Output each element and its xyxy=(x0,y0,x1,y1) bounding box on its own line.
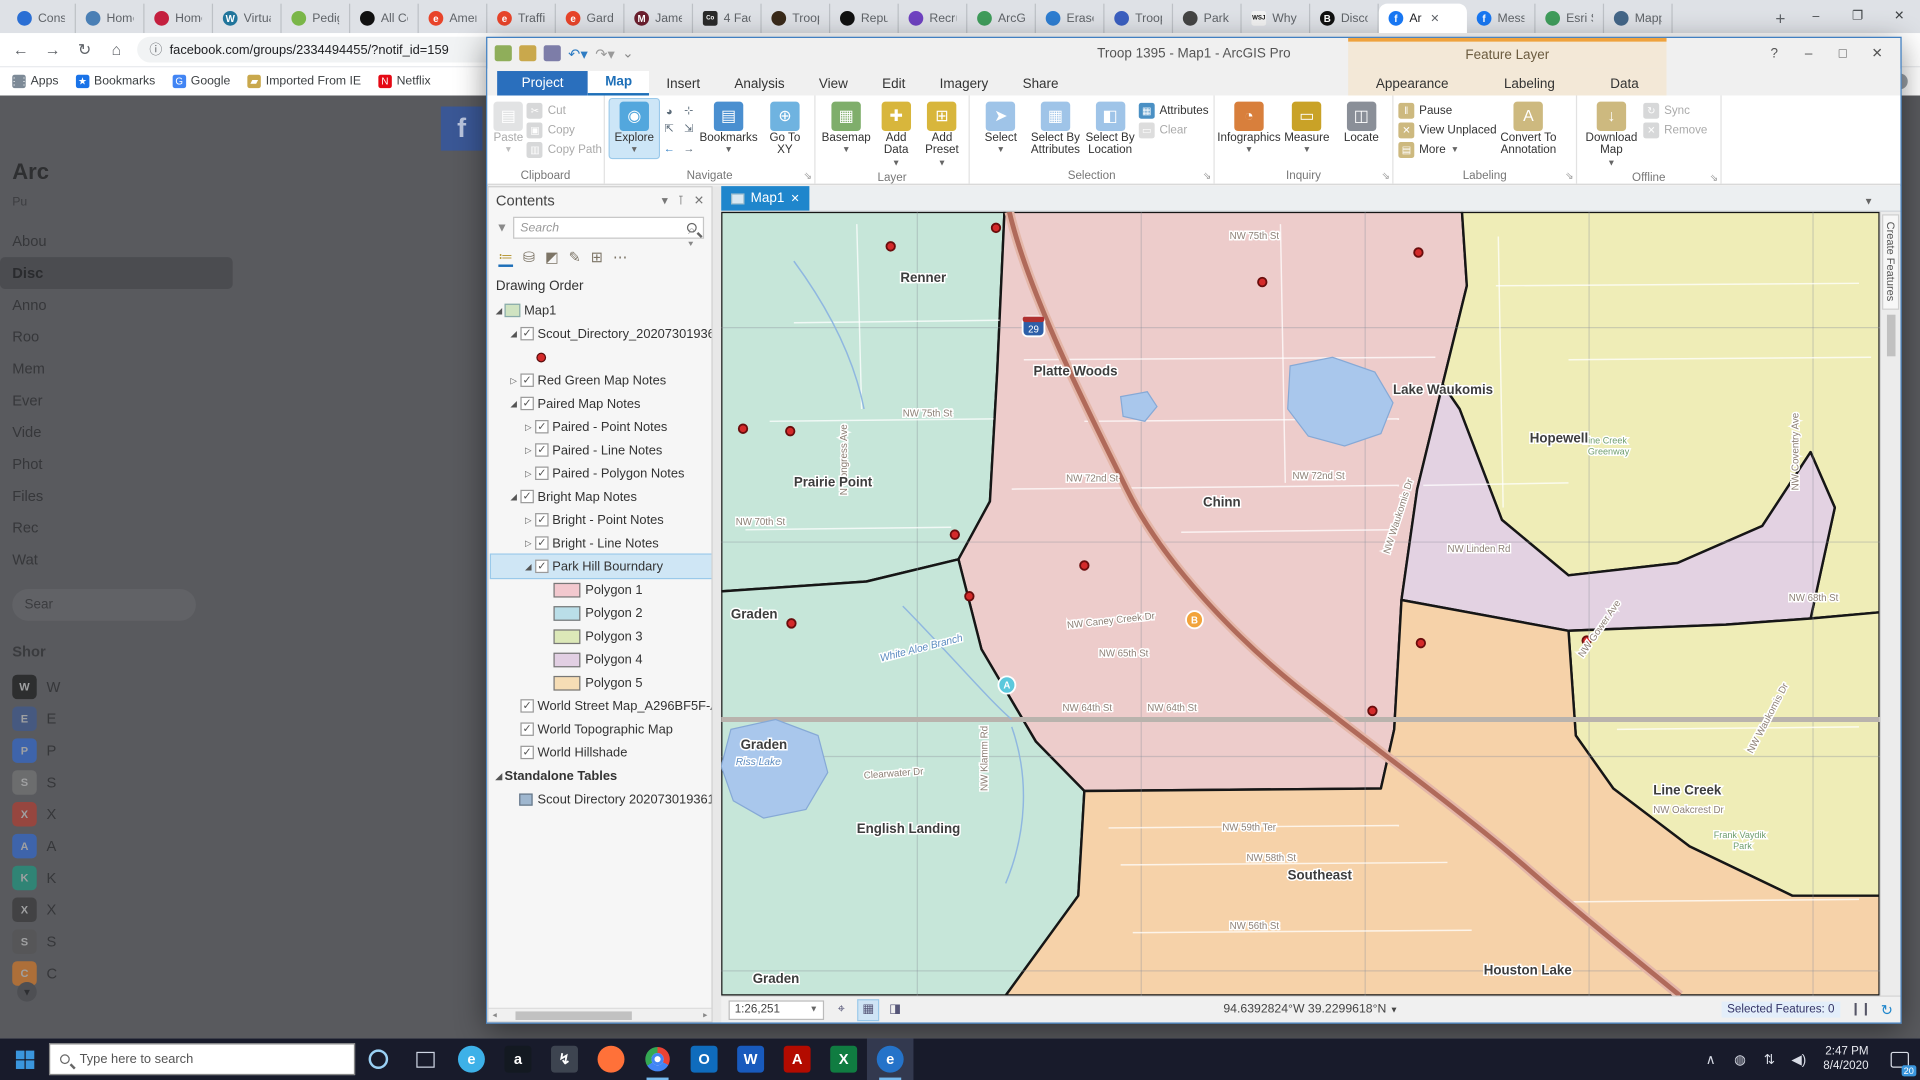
ribbon-tab-appearance[interactable]: Appearance xyxy=(1359,73,1466,95)
home-icon[interactable]: ⌂ xyxy=(105,40,127,58)
action-center-button[interactable]: 20 xyxy=(1878,1038,1920,1080)
dropdown-caret-icon: ▼ xyxy=(630,146,638,155)
map-tab-close-icon[interactable]: ✕ xyxy=(790,192,799,205)
search-icon xyxy=(60,1054,70,1064)
shortcut-item[interactable]: XX xyxy=(0,798,269,830)
group-visibility: Pu xyxy=(12,196,27,209)
bookmark-label: Bookmarks xyxy=(94,75,155,88)
tab-label: Mapp xyxy=(1635,12,1662,25)
pause-button[interactable]: ‖Pause xyxy=(1398,103,1496,119)
reload-icon[interactable]: ↻ xyxy=(73,40,95,60)
notification-badge: 20 xyxy=(1901,1065,1916,1076)
shortcut-item[interactable]: AA xyxy=(0,830,269,862)
download-icon: ↓ xyxy=(1597,102,1626,131)
button-label: Copy xyxy=(548,124,575,137)
group-menu-item[interactable]: Abou xyxy=(0,225,269,257)
more-button[interactable]: ▤More▼ xyxy=(1398,142,1496,158)
tab-favicon xyxy=(1114,11,1129,26)
shortcut-item[interactable]: CC xyxy=(0,958,269,990)
polygon-symbol-swatch[interactable] xyxy=(553,629,580,644)
tab-label: Ameri xyxy=(449,12,476,25)
map-label: Graden xyxy=(741,737,788,752)
tab-favicon xyxy=(1614,11,1629,26)
refresh-icon[interactable]: ↻ xyxy=(1881,1001,1893,1018)
sync-button[interactable]: ↻Sync xyxy=(1643,103,1707,119)
help-tray-icon[interactable]: ◍ xyxy=(1725,1051,1754,1067)
group-menu-item[interactable]: Wat xyxy=(0,544,269,576)
taskbar-app-excel[interactable]: X xyxy=(820,1038,867,1080)
ribbon-tab-imagery[interactable]: Imagery xyxy=(922,73,1005,95)
remove-icon: ✕ xyxy=(1643,122,1659,138)
task-view-button[interactable] xyxy=(402,1038,449,1080)
chevron-down-icon[interactable]: ▼ xyxy=(17,982,37,1002)
search-icon[interactable]: ⌕ ▾ xyxy=(687,223,697,233)
layer-tree-row[interactable]: ◢✓Park Hill Bourndary xyxy=(491,555,711,578)
remove-button[interactable]: ✕Remove xyxy=(1643,122,1707,138)
polygon-symbol-swatch[interactable] xyxy=(553,606,580,621)
bookmarks-button[interactable]: ▤Bookmarks▼ xyxy=(699,99,758,158)
button-label: More xyxy=(1419,143,1446,156)
group-menu-item[interactable]: Rec xyxy=(0,512,269,544)
group-menu-item[interactable]: Phot xyxy=(0,448,269,480)
map-label: NW 64th St xyxy=(1063,703,1113,714)
bookmark-item[interactable]: NNetflix xyxy=(378,75,430,88)
explore-button[interactable]: ◉Explore▼ xyxy=(610,99,659,158)
tab-label: Home xyxy=(107,12,134,25)
shortcut-item[interactable]: WW xyxy=(0,671,269,703)
layer-tree-row[interactable]: ▷✓Paired - Polygon Notes xyxy=(491,462,711,485)
shortcut-avatar: S xyxy=(12,929,36,953)
tab-label: Troop xyxy=(1135,12,1162,25)
browser-tab[interactable]: eTraffic xyxy=(487,4,556,33)
layer-label: World Topographic Map xyxy=(538,722,673,737)
google-icon: G xyxy=(172,75,185,88)
previous-extent-icon[interactable]: ← xyxy=(661,140,677,156)
dialog-launcher-icon[interactable]: ⇘ xyxy=(1710,172,1718,183)
map-tab-icon xyxy=(731,193,744,204)
group-menu-item[interactable]: Disc xyxy=(0,257,233,289)
tab-favicon: M xyxy=(634,11,649,26)
map-label: NW 56th St xyxy=(1230,921,1280,932)
browser-minimize-button[interactable]: – xyxy=(1795,0,1837,33)
volume-icon[interactable]: ◀) xyxy=(1784,1051,1813,1067)
shortcut-item[interactable]: KK xyxy=(0,862,269,894)
layer-tree-row[interactable]: ▷✓Paired - Line Notes xyxy=(491,438,711,461)
contents-search-input[interactable]: Search ⌕ ▾ xyxy=(513,217,704,239)
tab-label: ArcGI xyxy=(998,12,1025,25)
map-label: Frank Vaydik xyxy=(1714,830,1767,840)
pause-drawing-icon[interactable]: ❙❙ xyxy=(1850,1003,1871,1016)
start-button[interactable] xyxy=(0,1038,49,1080)
map-label: NW 68th St xyxy=(1789,593,1839,604)
layer-tree-row[interactable]: ◢✓Scout_Directory_2020730193615_G xyxy=(491,322,711,345)
ribbon-tab-project[interactable]: Project xyxy=(497,71,588,95)
browser-tab[interactable]: Co4 Fact xyxy=(693,4,762,33)
browser-tab[interactable]: Park xyxy=(1173,4,1242,33)
gotoxy-icon: ⊕ xyxy=(770,102,799,131)
bookmarks-icon: ▤ xyxy=(714,102,743,131)
layer-label: Bright - Line Notes xyxy=(552,536,658,551)
amazon-icon: a xyxy=(504,1046,531,1073)
layer-tree-row[interactable]: Polygon 3 xyxy=(491,624,711,647)
more-options-icon[interactable]: ⋯ xyxy=(613,249,628,266)
convert-to-annotation-button[interactable]: AConvert To Annotation xyxy=(1499,99,1558,160)
browser-tab[interactable]: Troop xyxy=(1104,4,1173,33)
ribbon-group-clipboard: ▤Paste▼✂Cut▣Copy▥Copy PathClipboard xyxy=(487,96,605,184)
infographics-button[interactable]: ◔Infographics▼ xyxy=(1220,99,1279,158)
snapping-toggle-icon[interactable]: ◨ xyxy=(885,1000,905,1020)
close-button[interactable]: ✕ xyxy=(1861,42,1893,65)
add-preset-button[interactable]: ⊞Add Preset▼ xyxy=(920,99,963,171)
group-menu-item[interactable]: Mem xyxy=(0,353,269,385)
search-placeholder: Search xyxy=(520,221,559,234)
layer-checkbox[interactable]: ✓ xyxy=(535,420,548,433)
map-canvas[interactable]: 29BANW 75th StNW 75th StNW 72nd StNW 72n… xyxy=(721,212,1879,996)
tab-label: Erase xyxy=(1067,12,1094,25)
windows-logo-icon xyxy=(15,1050,33,1068)
button-label: Add Data xyxy=(876,132,917,158)
help-button[interactable]: ? xyxy=(1758,42,1790,65)
clear-button[interactable]: ▭Clear xyxy=(1139,122,1209,138)
select-by-attributes-button[interactable]: ▦Select By Attributes xyxy=(1029,99,1081,160)
map-label: Park xyxy=(1733,841,1752,851)
taskbar-app-word[interactable]: W xyxy=(727,1038,774,1080)
button-label: Infographics xyxy=(1217,132,1280,145)
button-label: Locate xyxy=(1344,132,1379,145)
tab-favicon: e xyxy=(566,11,581,26)
expander-icon: ▷ xyxy=(508,375,519,385)
attributes-button[interactable]: ▦Attributes xyxy=(1139,103,1209,119)
shortcut-item[interactable]: SS xyxy=(0,767,269,799)
browser-tab[interactable]: Home xyxy=(76,4,145,33)
browser-tab[interactable]: MJames xyxy=(624,4,693,33)
ribbon-tab-view[interactable]: View xyxy=(802,73,865,95)
ribbon-group-offline: ↓Download Map▼↻Sync✕RemoveOffline⇘ xyxy=(1577,96,1721,184)
layer-tree-row[interactable]: ✓World Topographic Map xyxy=(491,718,711,741)
create-features-tab[interactable]: Create Features xyxy=(1882,214,1899,310)
ribbon-tab-edit[interactable]: Edit xyxy=(865,73,923,95)
group-search-input[interactable]: Sear xyxy=(12,589,196,621)
browser-tab[interactable]: fMesse xyxy=(1467,4,1536,33)
tab-label: James xyxy=(655,12,682,25)
group-menu-item[interactable]: Ever xyxy=(0,384,269,416)
layer-tree-row[interactable]: Polygon 1 xyxy=(491,578,711,601)
arcgis-pro-window: ↶▾ ↷▾ ⌄ Troop 1395 - Map1 - ArcGIS Pro F… xyxy=(486,37,1902,1024)
shortcut-avatar: S xyxy=(12,770,36,794)
zoom-in-grid-icon[interactable]: ⇱ xyxy=(661,121,677,137)
layer-checkbox[interactable]: ✓ xyxy=(535,443,548,456)
layer-tree-row[interactable]: Polygon 5 xyxy=(491,671,711,694)
group-menu-item[interactable]: Files xyxy=(0,480,269,512)
go-to-xy-icon[interactable]: ⌖ xyxy=(831,1000,851,1020)
browser-tab[interactable]: eGarde xyxy=(556,4,625,33)
browser-close-button[interactable]: ✕ xyxy=(1878,0,1920,33)
layer-checkbox[interactable]: ✓ xyxy=(520,490,533,503)
browser-tab[interactable]: Troop xyxy=(762,4,831,33)
list-by-snapping-icon[interactable]: ⊞ xyxy=(591,249,603,266)
taskbar-app-internet-explorer[interactable]: e xyxy=(448,1038,495,1080)
ribbon-tab-analysis[interactable]: Analysis xyxy=(717,73,801,95)
map-label: NW Oakcrest Dr xyxy=(1653,805,1724,816)
map-label: NW 59th Ter xyxy=(1222,822,1276,833)
browser-tab[interactable]: All Co xyxy=(350,4,419,33)
cut-button[interactable]: ✂Cut xyxy=(527,103,602,119)
layer-checkbox[interactable]: ✓ xyxy=(535,467,548,480)
browser-tab[interactable]: Repub xyxy=(830,4,899,33)
map-label: Renner xyxy=(900,270,947,285)
view-unplaced-button[interactable]: ✕View Unplaced xyxy=(1398,122,1496,138)
pin-icon[interactable]: ⊺ xyxy=(678,194,684,207)
tab-label: Const xyxy=(38,12,65,25)
layer-tree-row[interactable]: Polygon 4 xyxy=(491,648,711,671)
scout-point-feature xyxy=(886,242,894,251)
dialog-launcher-icon[interactable]: ⇘ xyxy=(1565,170,1573,181)
tab-list-chevron-icon[interactable]: ▼ xyxy=(1864,196,1874,207)
pane-close-icon[interactable]: ✕ xyxy=(694,194,704,207)
ribbon-tab-labeling[interactable]: Labeling xyxy=(1487,73,1572,95)
map-right-rail: Create Features xyxy=(1880,212,1901,996)
map-label: Chinn xyxy=(1203,494,1241,509)
expander-icon: ◢ xyxy=(493,771,504,781)
browser-tab[interactable]: Const xyxy=(7,4,76,33)
point-symbol-swatch xyxy=(536,352,546,362)
layer-label: Polygon 1 xyxy=(585,582,642,597)
select-button[interactable]: ➤Select▼ xyxy=(975,99,1027,158)
bookmark-item[interactable]: ▰Imported From IE xyxy=(247,75,361,88)
shortcut-item[interactable]: PP xyxy=(0,735,269,767)
layer-label: Paired Map Notes xyxy=(538,396,641,411)
tab-label: Pedig xyxy=(312,12,339,25)
taskbar-app-arcgis-pro[interactable]: e xyxy=(867,1038,914,1080)
filter-icon[interactable]: ▼ xyxy=(496,221,508,234)
contents-hscrollbar[interactable]: ◂▸ xyxy=(489,1008,712,1021)
tab-favicon xyxy=(291,11,306,26)
select-by-location-button[interactable]: ◧Select By Location xyxy=(1084,99,1136,160)
dropdown-caret-icon: ▼ xyxy=(1245,146,1253,155)
cortana-button[interactable] xyxy=(355,1038,402,1080)
grid-icon[interactable]: ▦ xyxy=(858,1000,878,1020)
button-label: View Unplaced xyxy=(1419,124,1496,137)
browser-tab[interactable]: Esri S xyxy=(1536,4,1605,33)
layer-checkbox[interactable]: ✓ xyxy=(520,397,533,410)
browser-tab[interactable]: fAr✕ xyxy=(1379,4,1467,33)
taskbar-clock[interactable]: 2:47 PM 8/4/2020 xyxy=(1813,1045,1878,1074)
forward-icon[interactable]: → xyxy=(42,40,64,58)
taskbar-app-chrome[interactable] xyxy=(634,1038,681,1080)
ribbon-tab-share[interactable]: Share xyxy=(1005,73,1075,95)
tab-favicon xyxy=(840,11,855,26)
dropdown-caret-icon: ▼ xyxy=(1607,159,1615,168)
shortcut-label: K xyxy=(47,869,57,886)
locate-icon: ◫ xyxy=(1347,102,1376,131)
download-map-button[interactable]: ↓Download Map▼ xyxy=(1582,99,1641,171)
expander-icon: ◢ xyxy=(508,492,519,502)
hidden-icons-chevron[interactable]: ∧ xyxy=(1696,1051,1725,1067)
layer-tree: ◢Map1◢✓Scout_Directory_2020730193615_G▷✓… xyxy=(489,299,712,1008)
taskbar-app-outlook[interactable]: O xyxy=(681,1038,728,1080)
add-data-button[interactable]: ✚Add Data▼ xyxy=(874,99,917,171)
layer-tree-row[interactable]: ▷✓Paired - Point Notes xyxy=(491,415,711,438)
layer-tree-row[interactable]: ▷✓Bright - Point Notes xyxy=(491,508,711,531)
taskbar-app-epic[interactable]: ↯ xyxy=(541,1038,588,1080)
svg-text:B: B xyxy=(1191,615,1198,626)
next-extent-icon[interactable]: → xyxy=(681,140,697,156)
scout-point-feature xyxy=(1417,639,1425,648)
taskbar-search-input[interactable]: Type here to search xyxy=(49,1043,355,1075)
shortcut-item[interactable]: EE xyxy=(0,703,269,735)
browser-tab[interactable]: Recru xyxy=(899,4,968,33)
pane-menu-icon[interactable]: ▾ xyxy=(662,194,668,207)
basemap-button[interactable]: ▦Basemap▼ xyxy=(820,99,872,158)
dialog-launcher-icon[interactable]: ⇘ xyxy=(804,170,812,181)
bookmark-item[interactable]: ★Bookmarks xyxy=(76,75,156,88)
fixed-zoom-icon[interactable]: ⊹ xyxy=(681,103,697,119)
go-to-xy-button[interactable]: ⊕Go To XY xyxy=(760,99,809,160)
back-icon[interactable]: ← xyxy=(10,40,32,58)
minimize-button[interactable]: – xyxy=(1793,42,1825,65)
tab-favicon xyxy=(1046,11,1061,26)
dialog-launcher-icon[interactable]: ⇘ xyxy=(1203,170,1211,181)
ribbon-group-navigate: ◉Explore▼◕⊹⇱⇲←→▤Bookmarks▼⊕Go To XYNavig… xyxy=(605,96,816,184)
dialog-launcher-icon[interactable]: ⇘ xyxy=(1382,170,1390,181)
group-menu-item[interactable]: Roo xyxy=(0,321,269,353)
system-tray: ∧ ◍ ⇅ ◀) 2:47 PM 8/4/2020 20 xyxy=(1696,1038,1920,1080)
acrobat-icon: A xyxy=(784,1046,811,1073)
bookmark-item[interactable]: GGoogle xyxy=(172,75,230,88)
adddata-icon: ✚ xyxy=(881,102,910,131)
new-tab-button[interactable]: + xyxy=(1766,4,1795,33)
layer-tree-row[interactable]: ✓World Hillshade xyxy=(491,741,711,764)
arcgis-title-bar[interactable]: ↶▾ ↷▾ ⌄ Troop 1395 - Map1 - ArcGIS Pro F… xyxy=(487,38,1900,69)
browser-tab[interactable]: Mapp xyxy=(1604,4,1673,33)
tab-label: Why xyxy=(1272,12,1296,25)
network-icon[interactable]: ⇅ xyxy=(1755,1051,1784,1067)
tab-favicon xyxy=(360,11,375,26)
shortcut-item[interactable]: XX xyxy=(0,894,269,926)
map-label: Southeast xyxy=(1288,868,1353,883)
map-tab[interactable]: Map1 ✕ xyxy=(721,186,809,210)
contents-toolbar: ≔ ⛁ ◩ ✎ ⊞ ⋯ xyxy=(489,241,712,269)
button-label: Attributes xyxy=(1159,104,1208,117)
scout-point-feature xyxy=(965,592,973,601)
browser-tab[interactable]: Home xyxy=(144,4,213,33)
task-view-icon xyxy=(416,1051,434,1067)
layer-checkbox[interactable]: ✓ xyxy=(520,722,533,735)
ribbon-tab-data[interactable]: Data xyxy=(1593,73,1656,95)
browser-tab[interactable]: Erase xyxy=(1036,4,1105,33)
expander-icon: ▷ xyxy=(523,538,534,548)
layer-tree-row[interactable]: ✓World Street Map_A296BF5F-A475 xyxy=(491,694,711,717)
group-menu-item[interactable]: Vide xyxy=(0,416,269,448)
copy-path-button[interactable]: ▥Copy Path xyxy=(527,142,602,158)
bookmark-item[interactable]: ⋮⋮Apps xyxy=(12,75,58,88)
ribbon-tab-map[interactable]: Map xyxy=(588,71,649,95)
dropdown-caret-icon: ▼ xyxy=(1451,146,1459,155)
layer-tree-row[interactable]: ▷✓Red Green Map Notes xyxy=(491,369,711,392)
layer-checkbox[interactable]: ✓ xyxy=(520,373,533,386)
layer-tree-row[interactable]: ▷✓Bright - Line Notes xyxy=(491,531,711,554)
list-by-drawing-order-icon[interactable]: ≔ xyxy=(498,247,513,267)
scale-selector[interactable]: 1:26,251▼ xyxy=(729,1000,825,1020)
layer-checkbox[interactable]: ✓ xyxy=(520,327,533,340)
taskbar-app-firefox[interactable] xyxy=(588,1038,635,1080)
polygon-symbol-swatch[interactable] xyxy=(553,675,580,690)
bookmark-label: Apps xyxy=(31,75,59,88)
shortcut-item[interactable]: SS xyxy=(0,926,269,958)
layer-tree-row[interactable]: ◢Standalone Tables xyxy=(491,764,711,787)
layer-tree-row[interactable]: ◢✓Bright Map Notes xyxy=(491,485,711,508)
shortcut-avatar: W xyxy=(12,675,36,699)
cortana-icon xyxy=(369,1049,389,1069)
layer-tree-row[interactable]: ◢Map1 xyxy=(491,299,711,322)
list-by-data-source-icon[interactable]: ⛁ xyxy=(523,249,535,266)
browser-tab[interactable]: eAmeri xyxy=(419,4,488,33)
button-label: Select By Location xyxy=(1085,132,1135,158)
ribbon-tab-insert[interactable]: Insert xyxy=(649,73,717,95)
taskbar-app-acrobat[interactable]: A xyxy=(774,1038,821,1080)
browser-tab[interactable]: Pedig xyxy=(282,4,351,33)
taskbar-app-amazon[interactable]: a xyxy=(495,1038,542,1080)
button-label: Select By Attributes xyxy=(1031,132,1081,158)
browser-tab[interactable]: BDisco xyxy=(1310,4,1379,33)
list-by-editing-icon[interactable]: ✎ xyxy=(569,249,581,266)
group-menu-item[interactable]: Anno xyxy=(0,289,269,321)
button-label: Explore xyxy=(615,132,654,145)
layer-label: Park Hill Bourndary xyxy=(552,559,663,574)
full-extent-icon[interactable]: ◕ xyxy=(661,103,677,119)
scout-point-feature xyxy=(951,530,959,539)
shortcut-avatar: E xyxy=(12,707,36,731)
layer-checkbox[interactable]: ✓ xyxy=(520,746,533,759)
browser-tab[interactable]: WSJWhy xyxy=(1242,4,1311,33)
layer-tree-row[interactable]: ◢✓Paired Map Notes xyxy=(491,392,711,415)
polygon-symbol-swatch[interactable] xyxy=(553,652,580,667)
map-label: Platte Woods xyxy=(1034,364,1118,379)
layer-checkbox[interactable]: ✓ xyxy=(520,699,533,712)
layer-tree-row[interactable] xyxy=(491,345,711,368)
maximize-button[interactable]: □ xyxy=(1827,42,1859,65)
polygon-symbol-swatch[interactable] xyxy=(553,582,580,597)
list-by-selection-icon[interactable]: ◩ xyxy=(545,249,559,266)
browser-tab[interactable]: ArcGI xyxy=(967,4,1036,33)
layer-checkbox[interactable]: ✓ xyxy=(535,513,548,526)
scout-point-feature xyxy=(1080,561,1088,570)
browser-tab[interactable]: WVirtua xyxy=(213,4,282,33)
zoom-out-grid-icon[interactable]: ⇲ xyxy=(681,121,697,137)
locate-button[interactable]: ◫Locate xyxy=(1335,99,1387,147)
measure-button[interactable]: ▭Measure▼ xyxy=(1281,99,1333,158)
map-thumbnail-icon xyxy=(504,304,520,317)
internet-explorer-icon: e xyxy=(458,1046,485,1073)
layer-tree-row[interactable]: Scout Directory 2020730193615.CS xyxy=(491,787,711,810)
layer-checkbox[interactable]: ✓ xyxy=(535,536,548,549)
browser-restore-button[interactable]: ❐ xyxy=(1837,0,1879,33)
dropdown-caret-icon: ▼ xyxy=(1303,146,1311,155)
ribbon-tab-bar: AppearanceLabelingData ProjectMapInsertA… xyxy=(487,69,1900,96)
layer-tree-row[interactable]: Polygon 2 xyxy=(491,601,711,624)
button-label: Convert To Annotation xyxy=(1500,132,1556,158)
paste-button[interactable]: ▤Paste▼ xyxy=(492,99,524,158)
infographics-icon: ◔ xyxy=(1234,102,1263,131)
site-info-icon[interactable]: ⓘ xyxy=(149,40,162,58)
tab-close-icon[interactable]: ✕ xyxy=(1430,12,1439,25)
map-label: Prairie Point xyxy=(794,475,873,490)
layer-checkbox[interactable]: ✓ xyxy=(535,560,548,573)
button-label: Basemap xyxy=(822,132,871,145)
copy-button[interactable]: ▣Copy xyxy=(527,122,602,138)
map-vscrollbar[interactable] xyxy=(1887,315,1896,357)
map-label: NW 75th St xyxy=(1230,231,1280,242)
